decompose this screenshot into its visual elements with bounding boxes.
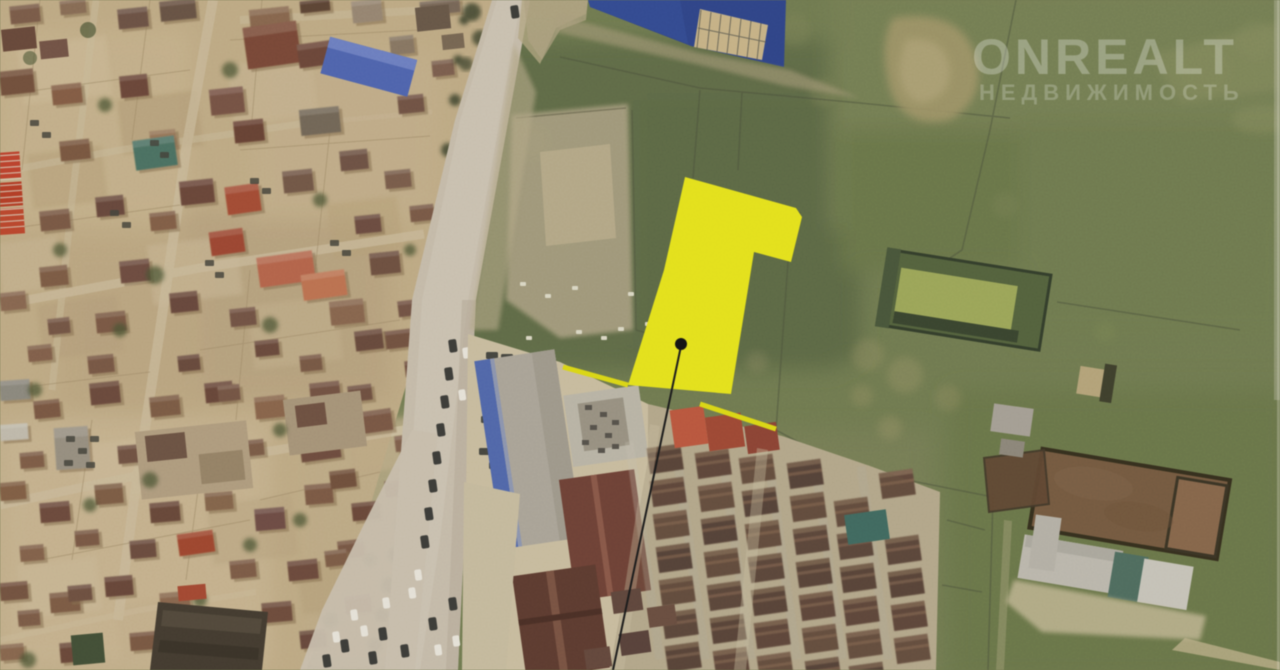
svg-text:НЕДВИЖИМОСТЬ: НЕДВИЖИМОСТЬ	[979, 80, 1245, 105]
svg-text:ONREALT: ONREALT	[972, 29, 1238, 85]
